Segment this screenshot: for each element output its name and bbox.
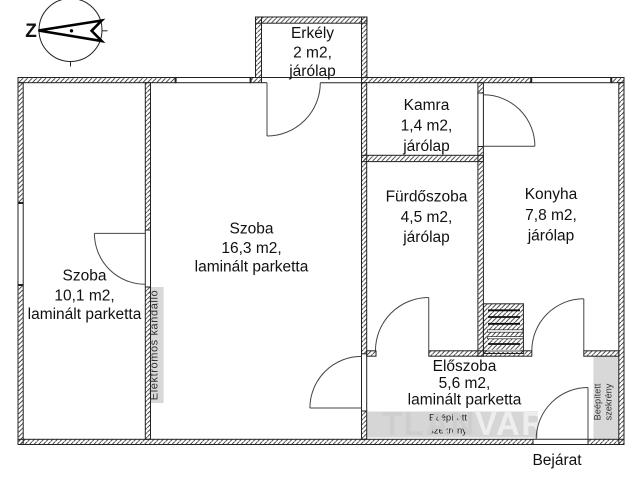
svg-text:járólap: járólap xyxy=(527,228,575,245)
svg-text:2 m2,: 2 m2, xyxy=(293,45,332,62)
svg-text:7,8 m2,: 7,8 m2, xyxy=(525,207,577,224)
svg-text:járólap: járólap xyxy=(288,63,336,80)
svg-text:10,1 m2,: 10,1 m2, xyxy=(54,288,114,305)
svg-text:4,5 m2,: 4,5 m2, xyxy=(401,209,453,226)
svg-text:Erkély: Erkély xyxy=(291,25,334,42)
svg-text:5,6 m2,: 5,6 m2, xyxy=(439,375,491,392)
svg-text:Szoba: Szoba xyxy=(63,268,107,285)
svg-text:Z: Z xyxy=(25,21,37,42)
svg-text:járólap: járólap xyxy=(402,229,450,246)
svg-text:laminált parketta: laminált parketta xyxy=(28,306,142,323)
svg-text:járólap: járólap xyxy=(402,138,450,155)
svg-text:Bejárat: Bejárat xyxy=(532,452,582,469)
svg-text:1,4 m2,: 1,4 m2, xyxy=(401,118,453,135)
svg-text:Előszoba: Előszoba xyxy=(433,358,497,375)
svg-text:laminált parketta: laminált parketta xyxy=(195,259,309,276)
svg-text:laminált parketta: laminált parketta xyxy=(408,392,522,409)
svg-text:16,3 m2,: 16,3 m2, xyxy=(221,240,281,257)
svg-text:szekrény: szekrény xyxy=(604,383,614,420)
svg-text:Szoba: Szoba xyxy=(230,221,274,238)
svg-text:Beépített: Beépített xyxy=(593,383,603,420)
svg-text:Kamra: Kamra xyxy=(404,97,450,114)
svg-text:Konyha: Konyha xyxy=(525,186,578,203)
svg-text:Fürdőszoba: Fürdőszoba xyxy=(386,189,468,206)
